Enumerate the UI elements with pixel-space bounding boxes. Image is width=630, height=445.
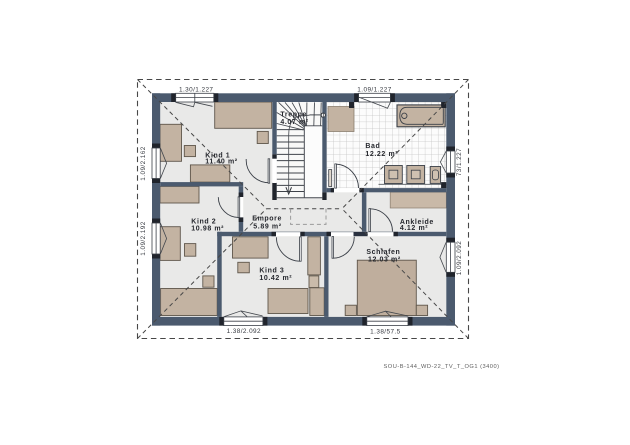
svg-text:10.42 m²: 10.42 m² [259, 275, 292, 282]
svg-text:1.09/2.192: 1.09/2.192 [140, 221, 147, 255]
svg-text:10.98 m²: 10.98 m² [191, 226, 224, 233]
svg-text:5.89 m²: 5.89 m² [253, 224, 281, 231]
svg-text:12.22 m²: 12.22 m² [365, 151, 398, 158]
svg-text:1.38/57.5: 1.38/57.5 [370, 329, 400, 336]
svg-text:1.38/2.092: 1.38/2.092 [227, 328, 261, 335]
svg-text:4.07 m²: 4.07 m² [280, 119, 308, 126]
svg-text:73/1.227: 73/1.227 [456, 148, 463, 176]
svg-text:1.30/1.227: 1.30/1.227 [179, 86, 213, 93]
svg-text:Schlafen: Schlafen [366, 249, 400, 256]
svg-text:1.09/2.162: 1.09/2.162 [140, 146, 147, 180]
svg-text:Kind 3: Kind 3 [259, 268, 284, 275]
svg-text:4.12 m²: 4.12 m² [400, 225, 428, 232]
svg-text:Treppe: Treppe [280, 112, 307, 119]
svg-text:Bad: Bad [365, 143, 380, 150]
svg-text:Kind 2: Kind 2 [191, 219, 216, 226]
svg-text:1.09/1.227: 1.09/1.227 [357, 86, 391, 93]
svg-text:1.09/2.092: 1.09/2.092 [456, 241, 463, 275]
svg-text:11.40 m²: 11.40 m² [205, 159, 237, 166]
svg-text:Empore: Empore [252, 215, 282, 222]
svg-text:SOU-B-144_WD-22_TV_T_OG1 (3400: SOU-B-144_WD-22_TV_T_OG1 (3400) [384, 364, 500, 370]
svg-text:12.03 m²: 12.03 m² [368, 257, 401, 264]
